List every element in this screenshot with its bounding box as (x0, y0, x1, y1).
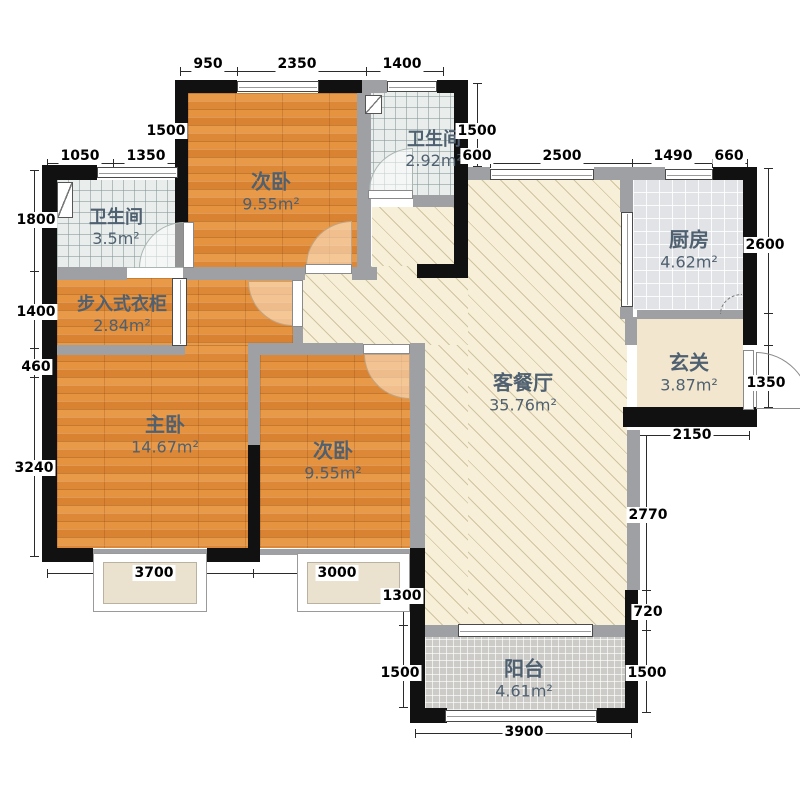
room-area: 4.61m² (495, 682, 553, 703)
room-name: 主卧 (131, 412, 199, 438)
wall (594, 167, 665, 180)
tick (749, 431, 750, 440)
dim-2770: 2770 (627, 507, 670, 523)
room-label-living: 客餐厅 35.76m² (489, 370, 557, 417)
tick (399, 707, 408, 708)
room-area: 9.55m² (304, 464, 362, 485)
window-balcony (445, 710, 597, 722)
dim-left-460: 460 (19, 359, 52, 375)
dim-top-1400: 1400 (381, 56, 424, 72)
dim-top-600: 600 (460, 148, 493, 164)
tick (764, 313, 773, 314)
tick (764, 345, 773, 346)
room-area: 2.84m² (77, 316, 167, 337)
wall (593, 625, 627, 637)
wall (248, 343, 260, 445)
dim-right-2600: 2600 (744, 237, 787, 253)
tick (764, 168, 773, 169)
window-bedroom-top (237, 81, 319, 92)
wall (625, 317, 637, 345)
room-area: 4.62m² (660, 253, 718, 274)
room-area: 14.67m² (131, 438, 199, 459)
dim-left-1800: 1800 (15, 212, 58, 228)
wall (183, 267, 305, 280)
room-name: 客餐厅 (489, 370, 557, 396)
wall (410, 548, 425, 722)
room-area: 3.5m² (89, 229, 143, 250)
window-bath-left (97, 167, 178, 178)
sliding-door-kitchen (621, 212, 633, 307)
tick (30, 348, 39, 349)
tick (443, 67, 444, 76)
tick (642, 435, 651, 436)
dim-right-1350: 1350 (745, 375, 788, 391)
dim-left-3240: 3240 (13, 460, 56, 476)
floor-plan: 次卧 9.55m² 卫生间 2.92m² 卫生间 3.5m² 步入式衣柜 2.8… (0, 0, 800, 800)
tick (399, 625, 408, 626)
wall (425, 625, 458, 637)
door-leaf-master (292, 280, 303, 327)
room-name: 卫生间 (89, 206, 143, 229)
tick (30, 556, 39, 557)
room-area: 3.87m² (660, 376, 718, 397)
room-area: 35.76m² (489, 396, 557, 417)
room-label-kitchen: 厨房 4.62m² (660, 227, 718, 274)
dim-right-1500-top: 1500 (456, 123, 499, 139)
dim-3700: 3700 (133, 565, 176, 581)
tick (30, 170, 39, 171)
dim-right-1500-bottom: 1500 (626, 665, 669, 681)
room-label-bath-left: 卫生间 3.5m² (89, 206, 143, 250)
dim-left-1500-bottom: 1500 (379, 665, 422, 681)
room-label-bedroom-bottom: 次卧 9.55m² (304, 438, 362, 485)
room-name: 次卧 (304, 438, 362, 464)
wall (357, 93, 371, 267)
door-leaf-bedroom-top (305, 264, 352, 274)
tick (642, 712, 651, 713)
wall (248, 445, 260, 548)
sliding-door-balcony (458, 624, 593, 637)
wall (260, 343, 363, 355)
wall (623, 407, 757, 427)
dim-3000: 3000 (316, 565, 359, 581)
room-name: 玄关 (660, 350, 718, 376)
tick (253, 569, 254, 578)
wall (362, 80, 387, 93)
door-leaf-bath-top (368, 190, 413, 199)
door-leaf-bedroom-bottom (363, 344, 410, 354)
tick (415, 729, 416, 738)
room-name: 卫生间 (405, 128, 463, 151)
wall (207, 548, 260, 562)
wall (413, 195, 454, 207)
dim-top-2500: 2500 (541, 148, 584, 164)
dim-720: 720 (631, 604, 664, 620)
room-name: 厨房 (660, 227, 718, 253)
room-name: 阳台 (495, 656, 553, 682)
room-label-balcony: 阳台 4.61m² (495, 656, 553, 703)
dim-left-1050: 1050 (59, 148, 102, 164)
dim-top-2350: 2350 (276, 56, 319, 72)
dim-top-1490: 1490 (652, 148, 695, 164)
dim-top-660: 660 (712, 148, 745, 164)
room-area: 2.92m² (405, 151, 463, 172)
dim-2150: 2150 (671, 427, 714, 443)
tick (30, 377, 39, 378)
tick (180, 67, 181, 76)
dim-left-1500: 1500 (145, 123, 188, 139)
room-name: 步入式衣柜 (77, 293, 167, 316)
window-living-top (490, 169, 594, 180)
flue-icon (365, 95, 382, 114)
window-bath-top (387, 81, 437, 92)
room-label-foyer: 玄关 3.87m² (660, 350, 718, 397)
wall (318, 80, 362, 93)
wall (175, 80, 237, 93)
room-area: 9.55m² (242, 195, 300, 216)
dim-1300: 1300 (381, 588, 424, 604)
room-label-bedroom-top: 次卧 9.55m² (242, 169, 300, 216)
sliding-door-closet (172, 278, 187, 346)
tick (473, 83, 482, 84)
wall (468, 167, 490, 180)
wall (42, 548, 93, 562)
tick (237, 67, 238, 76)
door-leaf-bath-left (183, 222, 194, 268)
wall (454, 80, 468, 278)
window-kitchen-top (665, 169, 713, 180)
wall (743, 167, 757, 345)
dim-3900: 3900 (503, 724, 546, 740)
tick (642, 630, 651, 631)
wall (417, 264, 468, 278)
wall (352, 267, 377, 280)
room-label-bath-top: 卫生间 2.92m² (405, 128, 463, 172)
wall (410, 708, 447, 723)
wall (620, 180, 633, 212)
room-label-closet: 步入式衣柜 2.84m² (77, 293, 167, 337)
tick (30, 271, 39, 272)
wall (410, 343, 425, 548)
bath-window-icon (57, 182, 73, 218)
room-name: 次卧 (242, 169, 300, 195)
dimension-line (455, 163, 748, 164)
floor-living (425, 345, 468, 625)
wall (57, 345, 185, 355)
dim-left-1400: 1400 (15, 304, 58, 320)
tick (366, 67, 367, 76)
tick (47, 569, 48, 578)
tick (642, 590, 651, 591)
room-label-master: 主卧 14.67m² (131, 412, 199, 459)
wall (597, 708, 638, 723)
dim-left-1350: 1350 (125, 148, 168, 164)
tick (631, 729, 632, 738)
dim-top-950: 950 (191, 56, 224, 72)
